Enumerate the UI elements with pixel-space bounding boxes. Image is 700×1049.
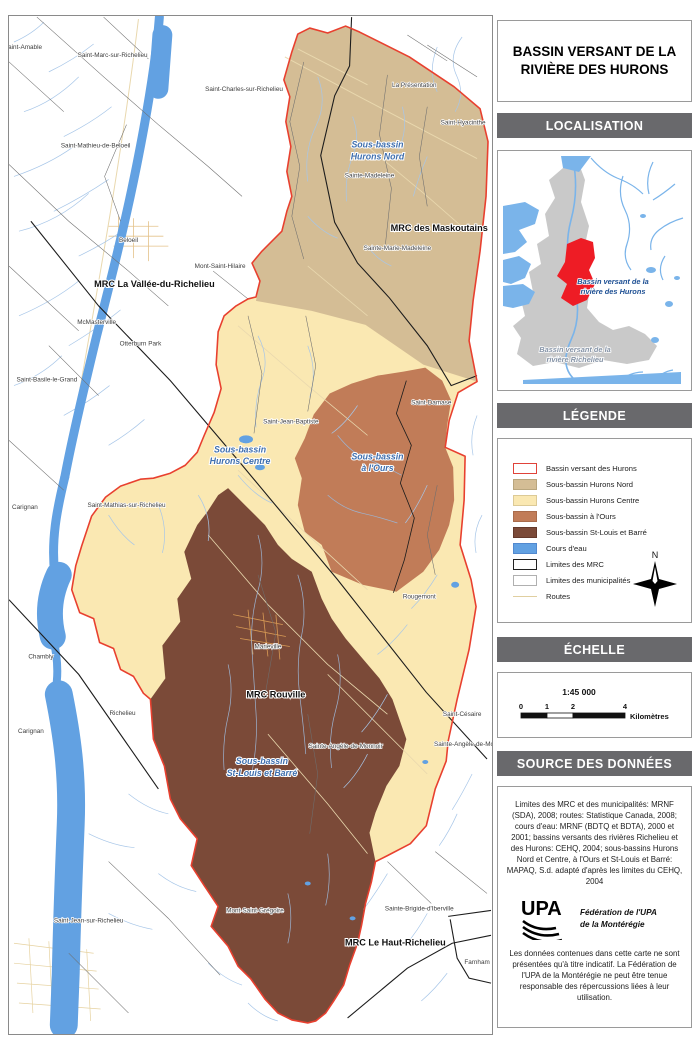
town-label: Richelieu <box>109 710 136 717</box>
section-header-legende: LÉGENDE <box>497 403 692 428</box>
legend-swatch <box>513 559 537 570</box>
legend-item: Sous-bassin Hurons Nord <box>513 476 691 492</box>
subbasin-label: Hurons Nord <box>351 152 405 162</box>
legend-swatch <box>513 575 537 586</box>
town-label: Saint-Basile-le-Grand <box>16 377 77 384</box>
town-label: Saint-Marc-sur-Richelieu <box>78 52 148 59</box>
legend-item-label: Limites des MRC <box>546 560 604 569</box>
subbasin-label: St-Louis et Barré <box>227 768 298 778</box>
localisation-inset-map: Bassin versant de larivière des HuronsBa… <box>503 156 685 384</box>
legend-item-label: Sous-bassin Hurons Nord <box>546 480 633 489</box>
town-label: Sainte-Madeleine <box>345 172 395 179</box>
scale-ratio: 1:45 000 <box>562 687 596 697</box>
scale-segment <box>521 713 547 718</box>
town-label: Marieville <box>254 643 281 650</box>
town-label: Saint-Jean-Baptiste <box>263 418 319 425</box>
town-label: Saint-Charles-sur-Richelieu <box>205 86 283 93</box>
town-label: Saint-Césaire <box>443 711 482 718</box>
section-header-label: ÉCHELLE <box>564 643 625 657</box>
map-title-box: BASSIN VERSANT DE LA RIVIÈRE DES HURONS <box>497 20 692 102</box>
legend-swatch <box>513 511 537 522</box>
legend-swatch <box>513 479 537 490</box>
scale-segment <box>573 713 625 718</box>
town-label: Chambly <box>28 653 54 660</box>
section-header-localisation: LOCALISATION <box>497 113 692 138</box>
town-label: McMasterville <box>77 319 116 326</box>
legend-item-label: Sous-bassin à l'Ours <box>546 512 616 521</box>
data-source-box: Limites des MRC et des municipalités: MR… <box>497 786 692 1028</box>
upa-federation-name: Fédération de l'UPA de la Montérégie <box>580 907 657 929</box>
inset-label: rivière Richelieu <box>546 355 604 364</box>
town-label: Carignan <box>18 728 44 735</box>
scale-unit: Kilomètres <box>630 712 669 721</box>
compass-rose: N <box>631 548 679 608</box>
town-label: Sainte-Angèle-de-Monnoir <box>308 743 383 750</box>
scale-bar: 1:45 000 0124Kilomètres <box>498 673 691 737</box>
town-label: Sainte-Marie-Madeleine <box>364 245 432 252</box>
legend-line-swatch <box>513 596 537 597</box>
main-map-svg: Saint-AmableSaint-Marc-sur-RichelieuSain… <box>9 16 492 1034</box>
upa-logo-icon: UPA <box>520 898 572 940</box>
legend-item-label: Limites des municipalités <box>546 576 630 585</box>
svg-text:UPA: UPA <box>521 898 562 920</box>
town-label: Saint-Amable <box>9 44 42 51</box>
localisation-inset-box: Bassin versant de larivière des HuronsBa… <box>497 150 692 391</box>
section-header-label: LOCALISATION <box>546 119 644 133</box>
map-document: Saint-AmableSaint-Marc-sur-RichelieuSain… <box>0 0 700 1049</box>
town-label: Farnham <box>464 959 489 966</box>
town-label: Mont-Saint-Grégoire <box>226 907 284 914</box>
legend-item-label: Cours d'eau <box>546 544 587 553</box>
legend-item: Sous-bassin St-Louis et Barré <box>513 524 691 540</box>
town-label: Mont-Saint-Hilaire <box>195 263 246 270</box>
town-label: Carignan <box>12 504 38 511</box>
compass-north-label: N <box>652 550 659 560</box>
subbasin-label: Hurons Centre <box>210 456 271 466</box>
inset-label: Bassin versant de la <box>539 345 610 354</box>
legend-swatch <box>513 543 537 554</box>
town-label: Sainte-Brigide-d'Iberville <box>385 905 454 912</box>
town-label: Saint-Damase <box>411 399 452 406</box>
town-label: Saint-Hyacinthe <box>441 120 486 127</box>
subbasin-label: Sous-bassin <box>351 451 403 461</box>
legend-item-label: Routes <box>546 592 570 601</box>
section-header-source: SOURCE DES DONNÉES <box>497 751 692 776</box>
town-label: La Présentation <box>392 82 437 89</box>
legend-swatch <box>513 495 537 506</box>
scale-tick: 1 <box>545 702 549 711</box>
subbasin-label: à l'Ours <box>361 463 393 473</box>
subbasin-label: Sous-bassin <box>214 444 266 454</box>
inset-label: Bassin versant de la <box>577 277 648 286</box>
legend-item-label: Sous-bassin Hurons Centre <box>546 496 639 505</box>
subbasin-label: Sous-bassin <box>236 756 288 766</box>
legend-item-label: Bassin versant des Hurons <box>546 464 637 473</box>
town-label: Saint-Jean-sur-Richelieu <box>54 917 124 924</box>
mrc-label: MRC La Vallée-du-Richelieu <box>94 279 215 289</box>
legend-swatch <box>513 527 537 538</box>
mrc-label: MRC des Maskoutains <box>391 223 488 233</box>
town-label: Otterburn Park <box>120 341 163 348</box>
section-header-label: SOURCE DES DONNÉES <box>517 757 672 771</box>
section-header-label: LÉGENDE <box>563 409 626 423</box>
mrc-label: MRC Le Haut-Richelieu <box>345 937 446 947</box>
legend-item: Sous-bassin à l'Ours <box>513 508 691 524</box>
town-label: Saint-Mathias-sur-Richelieu <box>87 502 166 509</box>
town-label: Rougemont <box>403 594 436 601</box>
disclaimer-text: Les données contenues dans cette carte n… <box>506 948 683 1003</box>
town-label: Saint-Mathieu-de-Beloeil <box>61 143 131 150</box>
scale-tick: 4 <box>623 702 628 711</box>
data-source-text: Limites des MRC et des municipalités: MR… <box>506 799 683 888</box>
section-header-echelle: ÉCHELLE <box>497 637 692 662</box>
mrc-label: MRC Rouville <box>246 689 305 699</box>
scale-bar-graphic: 0124Kilomètres <box>519 702 669 721</box>
scale-tick: 2 <box>571 702 575 711</box>
main-map: Saint-AmableSaint-Marc-sur-RichelieuSain… <box>8 15 493 1035</box>
legend-item: Bassin versant des Hurons <box>513 460 691 476</box>
subbasin-label: Sous-bassin <box>351 140 403 150</box>
legend-swatch <box>513 463 537 474</box>
scale-box: 1:45 000 0124Kilomètres <box>497 672 692 738</box>
legend-box: Bassin versant des HuronsSous-bassin Hur… <box>497 438 692 623</box>
upa-logo-row: UPA Fédération de l'UPA de la Montérégie <box>520 898 683 940</box>
map-title: BASSIN VERSANT DE LA RIVIÈRE DES HURONS <box>498 43 691 78</box>
inset-label: rivière des Hurons <box>581 287 646 296</box>
town-label: Sainte-Angèle-de-Monnoir <box>434 741 492 748</box>
town-label: Beloeil <box>119 237 138 244</box>
scale-tick: 0 <box>519 702 523 711</box>
legend-item-label: Sous-bassin St-Louis et Barré <box>546 528 647 537</box>
scale-segment <box>547 713 573 718</box>
legend-item: Sous-bassin Hurons Centre <box>513 492 691 508</box>
